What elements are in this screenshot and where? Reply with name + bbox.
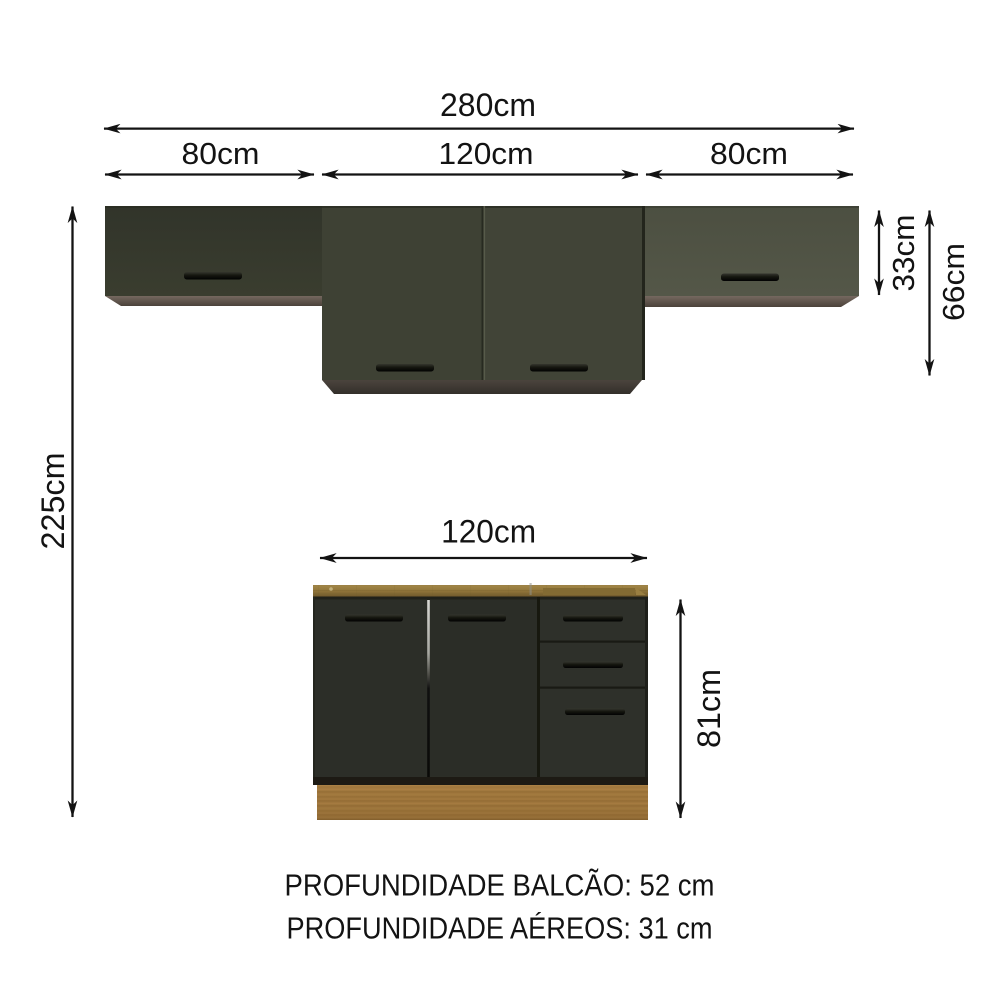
svg-text:280cm: 280cm [440,87,536,123]
svg-text:66cm: 66cm [936,243,971,321]
svg-text:80cm: 80cm [182,136,260,171]
svg-text:PROFUNDIDADE BALCÃO: 52 cm: PROFUNDIDADE BALCÃO: 52 cm [285,868,715,903]
svg-text:225cm: 225cm [35,453,71,550]
svg-text:81cm: 81cm [691,669,727,748]
svg-text:PROFUNDIDADE AÉREOS: 31 cm: PROFUNDIDADE AÉREOS: 31 cm [287,910,713,945]
svg-text:120cm: 120cm [439,136,534,171]
svg-text:33cm: 33cm [886,215,921,292]
svg-text:80cm: 80cm [710,136,788,171]
svg-text:120cm: 120cm [441,514,536,550]
